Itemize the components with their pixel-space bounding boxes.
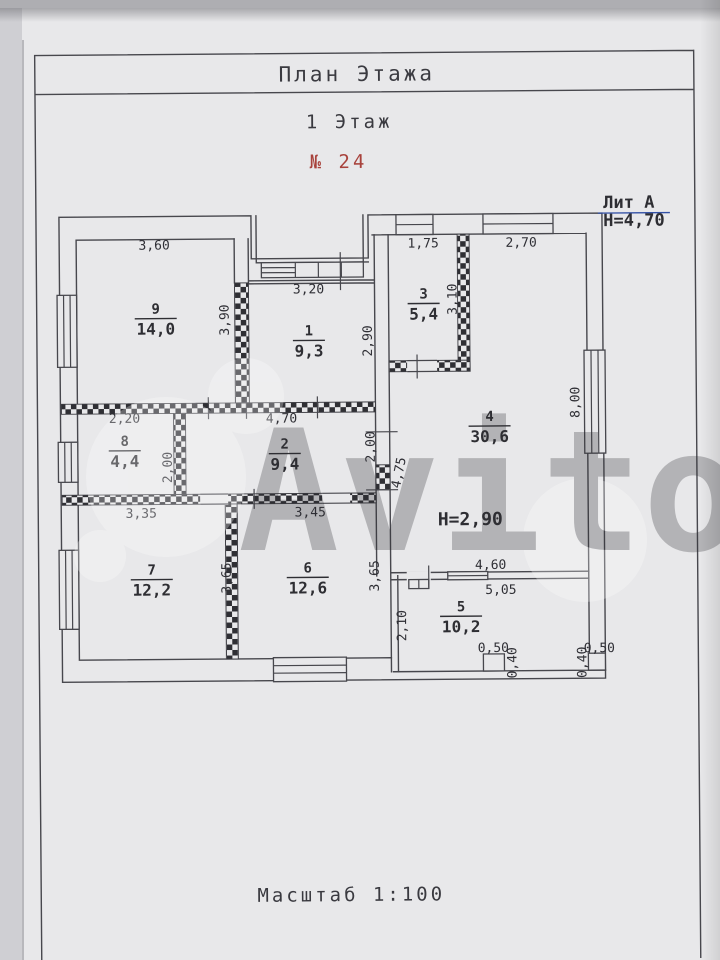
dimension-label: 1,75 bbox=[407, 236, 438, 251]
floor-plan-svg: План Этажа 1 Этаж № 24 Масштаб 1:100 bbox=[0, 0, 720, 960]
svg-text:5,4: 5,4 bbox=[409, 304, 438, 323]
dimension-label: 2,10 bbox=[395, 610, 410, 641]
dimension-label: 0,40 bbox=[505, 647, 520, 678]
svg-text:3: 3 bbox=[419, 286, 428, 302]
dimension-label: 2,90 bbox=[361, 325, 376, 356]
floor-plan-document: План Этажа 1 Этаж № 24 Масштаб 1:100 bbox=[0, 0, 720, 960]
dimension-label: 3,10 bbox=[445, 284, 460, 315]
svg-text:1: 1 bbox=[305, 323, 314, 339]
dimension-label: 2,70 bbox=[505, 236, 536, 251]
svg-text:12,2: 12,2 bbox=[133, 580, 172, 599]
svg-text:5: 5 bbox=[457, 599, 466, 615]
annotation-h-top: H=4,70 bbox=[603, 211, 665, 231]
svg-text:10,2: 10,2 bbox=[442, 617, 481, 636]
watermark-text: Avito bbox=[238, 394, 720, 590]
dimension-label: 3,20 bbox=[293, 282, 324, 297]
svg-text:9: 9 bbox=[151, 302, 160, 318]
dimension-label: 3,60 bbox=[138, 238, 169, 253]
scale-label: Масштаб 1:100 bbox=[257, 883, 445, 906]
floor-label: 1 Этаж bbox=[306, 111, 393, 134]
svg-text:9,3: 9,3 bbox=[294, 341, 323, 360]
dimension-label: 3,90 bbox=[218, 304, 233, 335]
dimension-label: 3,65 bbox=[220, 562, 235, 593]
dimension-label: 0,40 bbox=[575, 647, 590, 678]
svg-text:14,0: 14,0 bbox=[136, 319, 175, 338]
plan-number: № 24 bbox=[310, 151, 368, 173]
page-title: План Этажа bbox=[279, 61, 436, 86]
porch-steps bbox=[261, 262, 363, 278]
dimension-label: 0,50 bbox=[478, 641, 509, 656]
svg-text:7: 7 bbox=[147, 563, 156, 579]
